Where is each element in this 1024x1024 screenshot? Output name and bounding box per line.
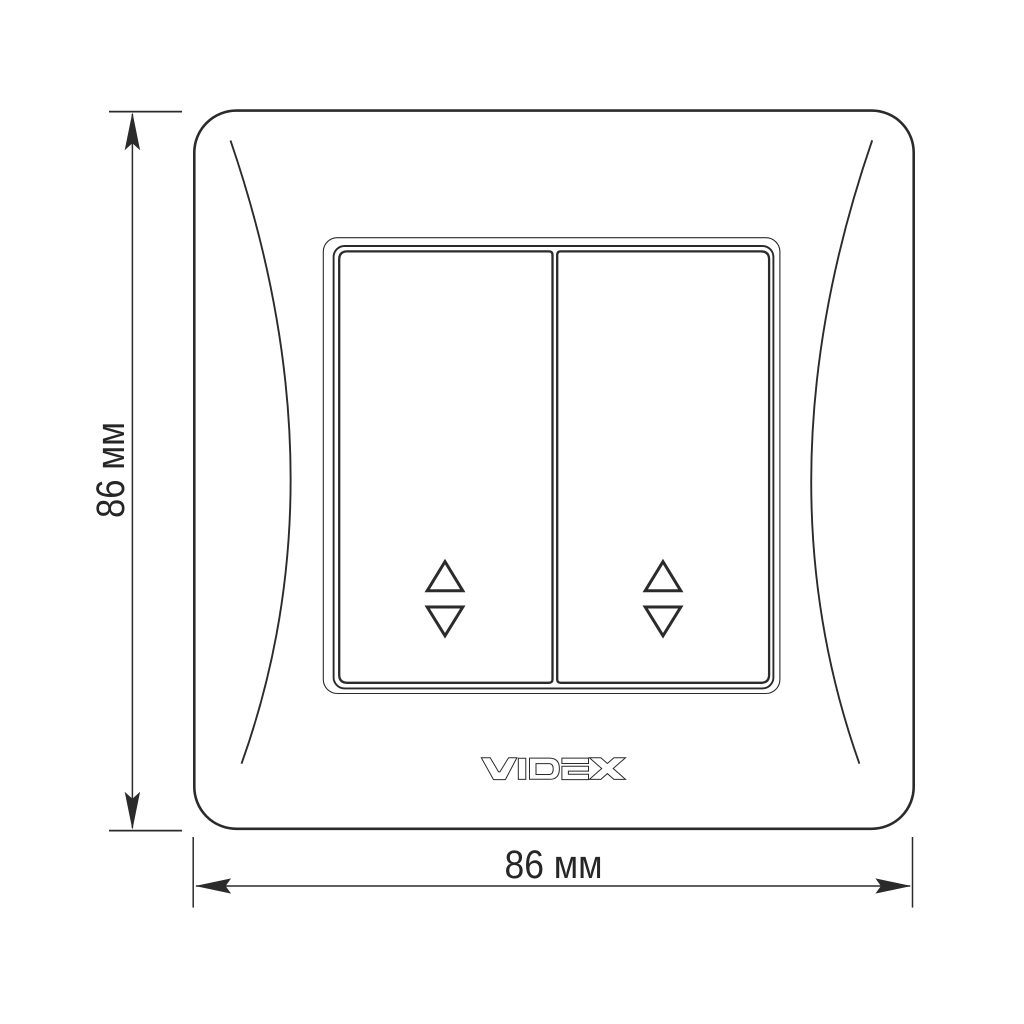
svg-text:86 мм: 86 мм	[505, 843, 603, 887]
svg-text:86 мм: 86 мм	[89, 422, 133, 518]
